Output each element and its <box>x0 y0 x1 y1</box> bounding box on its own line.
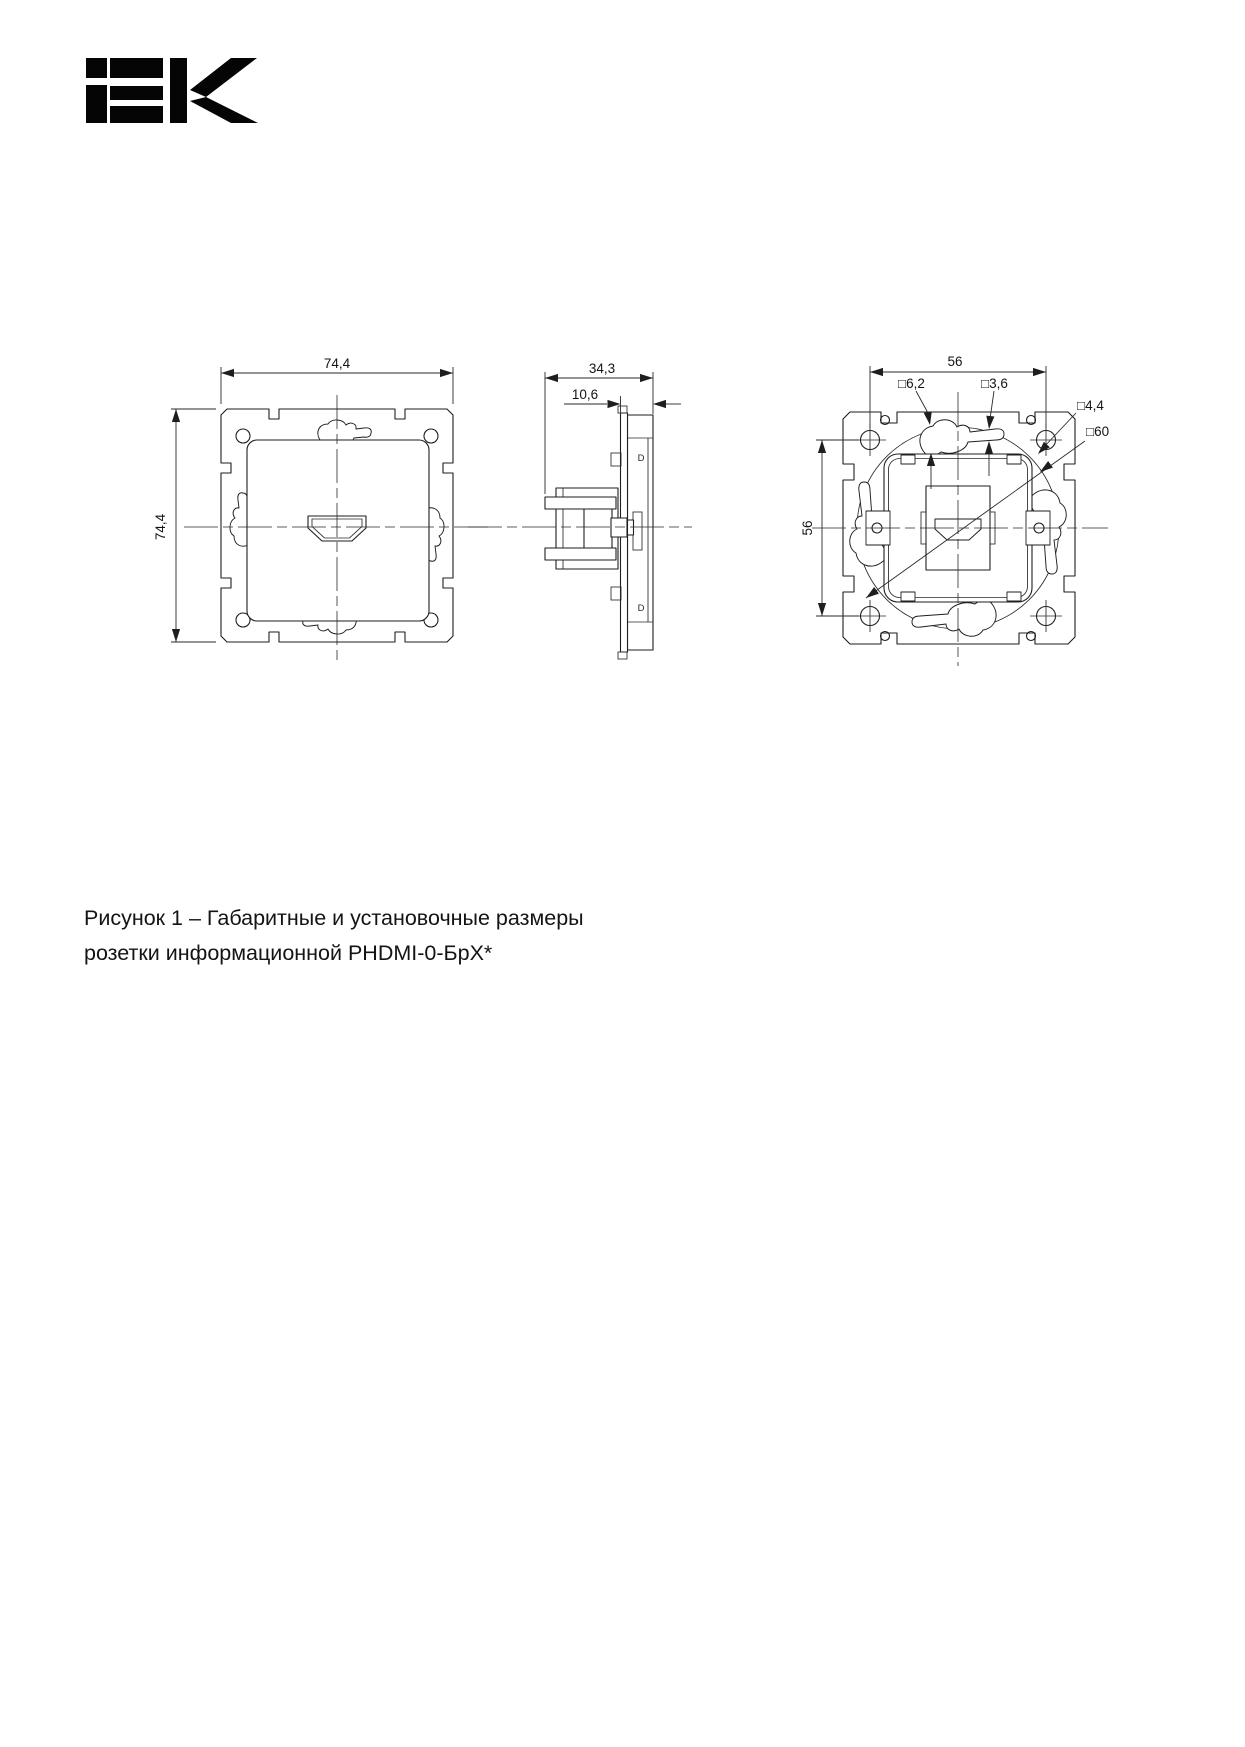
side-mark-top: D <box>638 453 645 464</box>
rear-clip <box>1007 592 1021 601</box>
caption-line-2: розетки информационной PHDMI-0-БрХ* <box>84 936 644 971</box>
dim-label-side-offset: 10,6 <box>572 387 598 402</box>
dim-label-hole-size: □4,4 <box>1077 398 1104 413</box>
dim-label-front-width: 74,4 <box>324 356 351 371</box>
logo-e-top <box>110 58 163 78</box>
side-claw-pivot-top <box>611 453 621 466</box>
rear-view-drawing: 56 56 □6,2 □3,6 □4,4 □60 <box>800 354 1109 644</box>
dim-label-rear-hspan: 56 <box>947 354 962 369</box>
technical-drawing: iEK 74,4 <box>0 0 1245 1747</box>
side-connector-tip <box>628 520 634 535</box>
iek-logo: iEK <box>86 58 258 123</box>
side-connector-body <box>584 509 612 548</box>
side-mark-bottom: D <box>638 603 645 614</box>
side-support-arm-bottom <box>545 548 616 560</box>
logo-k-stem <box>170 58 187 123</box>
document-page: iEK 74,4 <box>0 0 1245 1747</box>
logo-k-lower-arm <box>190 97 258 123</box>
rear-clip <box>901 455 915 464</box>
figure-caption: Рисунок 1 – Габаритные и установочные ра… <box>84 901 644 971</box>
dim-label-side-depth: 34,3 <box>589 361 615 376</box>
dim-label-front-height: 74,4 <box>153 513 168 540</box>
caption-line-1: Рисунок 1 – Габаритные и установочные ра… <box>84 901 644 936</box>
dim-label-claw-slot: □6,2 <box>898 376 925 391</box>
logo-i-stem <box>86 85 107 123</box>
rear-clip <box>901 592 915 601</box>
side-claw-pivot-bottom <box>611 587 621 600</box>
side-view-drawing: D D 34,3 10,6 <box>545 361 681 659</box>
side-support-arm-top <box>545 497 616 509</box>
side-connector-stub <box>611 518 627 537</box>
logo-e-bottom <box>110 106 163 123</box>
dim-label-square-size: □60 <box>1086 424 1109 439</box>
dim-label-claw-arm: □3,6 <box>981 376 1008 391</box>
logo-e-mid <box>110 86 163 100</box>
logo-i-dot <box>86 58 107 78</box>
front-view-drawing: 74,4 74,4 <box>153 356 453 642</box>
logo-k-upper-arm <box>190 58 257 97</box>
rear-clip <box>1007 455 1021 464</box>
